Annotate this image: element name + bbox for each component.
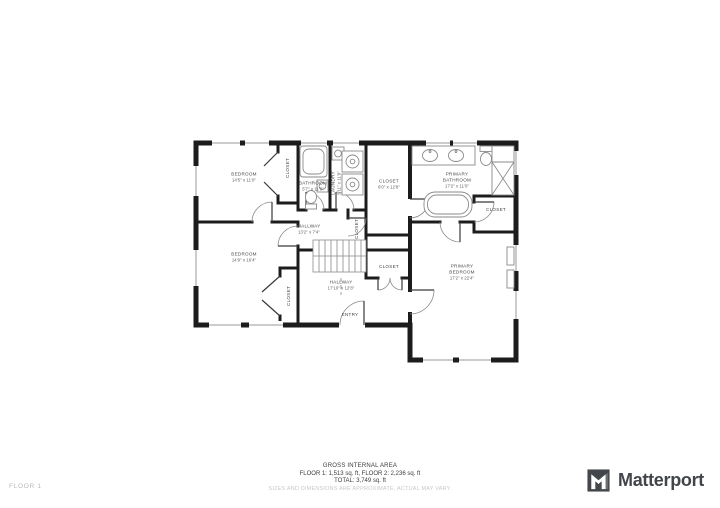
room-label-primary-bedroom: PRIMARY BEDROOM 17'2" x 22'4" xyxy=(442,263,482,280)
room-label-bedroom-2: BEDROOM 14'9" x 16'4" xyxy=(231,251,257,262)
room-label-closet-hall: CLOSET xyxy=(354,219,360,239)
room-label-closet-bedroom1: CLOSET xyxy=(285,158,291,178)
floor-indicator: FLOOR 1 xyxy=(9,483,42,490)
primary-bathtub-icon xyxy=(424,192,472,217)
room-label-closet-center: CLOSET 6'0" x 12'8" xyxy=(378,178,400,189)
double-vanity-icon xyxy=(412,146,475,165)
room-label-laundry: LAUNDRY 5'11" x 11'9" xyxy=(330,171,341,195)
bathtub-icon xyxy=(300,146,327,177)
room-label-bathroom: BATHROOM 5'7" x 11'0" xyxy=(299,180,327,191)
room-label-closet-primary: CLOSET xyxy=(486,207,506,213)
room-label-closet-entry: CLOSET xyxy=(379,264,399,270)
room-label-primary-bathroom: PRIMARY BATHROOM 17'2" x 11'0" xyxy=(437,171,477,188)
builtin-shelf xyxy=(507,270,514,288)
floor-plan-drawing xyxy=(0,0,720,508)
room-label-hallway-upper: HALLWAY 13'2" x 7'4" xyxy=(298,223,321,234)
matterport-wordmark: Matterport xyxy=(618,470,704,491)
washer-icon xyxy=(342,151,363,172)
floor-plan-page: BEDROOM 14'5" x 11'0" CLOSET BATHROOM 5'… xyxy=(0,0,720,508)
dryer-icon xyxy=(342,174,363,195)
room-label-bedroom-1: BEDROOM 14'5" x 11'0" xyxy=(231,171,257,182)
primary-toilet-icon xyxy=(480,146,492,166)
shower-icon xyxy=(492,146,514,195)
matterport-m-icon xyxy=(586,468,611,493)
room-label-hallway-lower: HALLWAY 17'10" x 12'8" xyxy=(328,279,355,290)
toilet-icon xyxy=(306,191,317,210)
room-label-entry: ENTRY xyxy=(342,312,359,318)
builtin-shelf xyxy=(507,247,514,265)
matterport-logo: Matterport xyxy=(586,468,704,493)
room-label-closet-bedroom2: CLOSET xyxy=(286,286,292,306)
